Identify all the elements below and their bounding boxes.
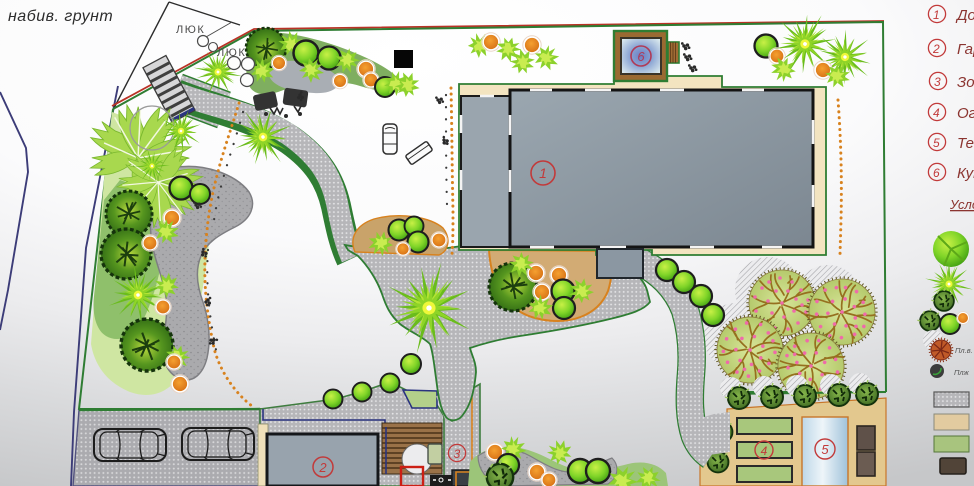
svg-text:4: 4 (933, 106, 940, 120)
svg-text:4: 4 (761, 444, 768, 458)
svg-text:Зона: Зона (957, 74, 974, 91)
svg-text:Огород: Огород (957, 105, 974, 122)
svg-text:1: 1 (933, 8, 940, 22)
svg-text:набив. грунт: набив. грунт (8, 8, 113, 25)
svg-text:Гараж: Гараж (957, 41, 974, 58)
svg-text:1: 1 (539, 165, 547, 181)
svg-text:6: 6 (637, 49, 645, 64)
svg-text:Куп: Куп (957, 165, 974, 182)
svg-text:Пл.в.: Пл.в. (955, 346, 973, 355)
svg-text:Дом: Дом (955, 7, 974, 24)
svg-text:3: 3 (934, 75, 941, 89)
svg-text:5: 5 (821, 442, 829, 457)
svg-text:2: 2 (932, 42, 940, 56)
svg-text:ЛЮК: ЛЮК (176, 24, 205, 36)
svg-text:5: 5 (933, 136, 940, 150)
svg-text:Тепл: Тепл (957, 135, 974, 152)
svg-text:Усло: Усло (949, 197, 974, 212)
svg-text:Плж: Плж (954, 368, 970, 377)
svg-text:3: 3 (454, 447, 461, 461)
svg-text:6: 6 (933, 166, 940, 180)
svg-text:2: 2 (318, 460, 327, 475)
